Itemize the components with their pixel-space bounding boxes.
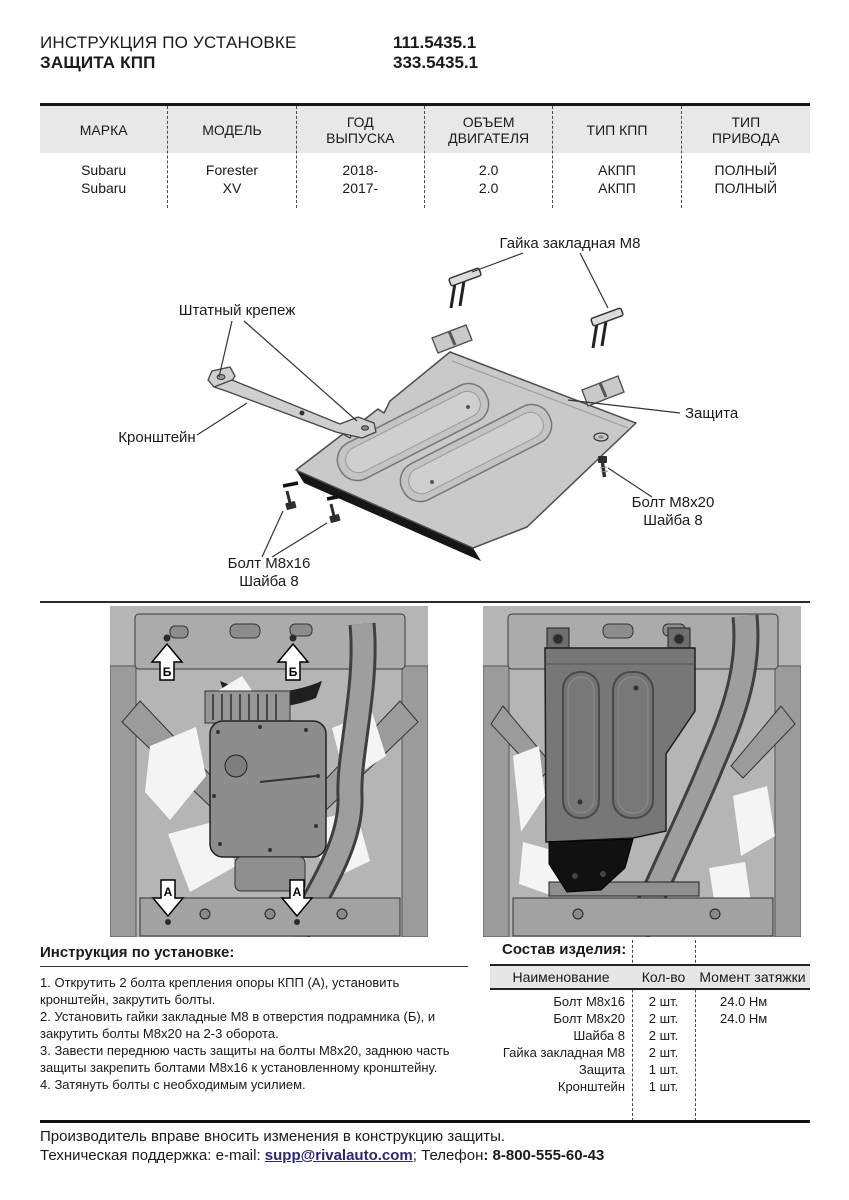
part-qty: 2 шт. — [632, 1027, 695, 1044]
cell: 2.0 — [425, 179, 552, 197]
bolt-m8x16-icon-2 — [327, 496, 342, 523]
footer-disclaimer: Производитель вправе вносить изменения в… — [40, 1128, 505, 1145]
washer-icon — [594, 433, 608, 441]
cell: Subaru — [40, 161, 167, 179]
instruction-step: 2. Установить гайки закладные М8 в отвер… — [40, 1008, 464, 1042]
instruction-sheet: ИНСТРУКЦИЯ ПО УСТАНОВКЕ ЗАЩИТА КПП 111.5… — [0, 0, 849, 1200]
support-label: Техническая поддержка: e-mail: — [40, 1147, 265, 1164]
parts-header-qty: Кол-во — [632, 969, 695, 985]
cell: 2.0 — [425, 161, 552, 179]
col-header: МАРКА — [40, 106, 167, 153]
plate-hole — [430, 480, 434, 484]
footer-divider — [40, 1120, 810, 1123]
label-factory-fastener: Штатный крепеж — [179, 302, 296, 319]
plate-fork-tab-top — [432, 325, 472, 353]
part-torque: 24.0 Нм — [720, 1010, 810, 1027]
bolt-m8x16-icon-1 — [283, 483, 298, 510]
cell: 2017- — [297, 179, 424, 197]
label-bracket: Кронштейн — [118, 429, 195, 446]
cell: ПОЛНЫЙ — [682, 179, 810, 197]
instructions-rule — [40, 966, 468, 967]
part-name: Болт М8х16 — [490, 993, 625, 1010]
parts-header-torque: Момент затяжки — [695, 969, 810, 985]
vehicle-col-gearbox: ТИП КПП АКПП АКПП — [553, 106, 681, 208]
vehicle-col-model: МОДЕЛЬ Forester XV — [168, 106, 296, 208]
instructions-title: Инструкция по установке: — [40, 944, 234, 961]
vehicle-col-year: ГОД ВЫПУСКА 2018- 2017- — [297, 106, 425, 208]
label-bolt-m8x16: Болт М8х16 — [228, 555, 311, 572]
parts-table-header: Наименование Кол-во Момент затяжки — [490, 964, 810, 990]
marker-a-label: А — [164, 885, 173, 899]
exploded-view-diagram: Гайка закладная М8 Штатный крепеж Защита… — [40, 220, 810, 602]
label-washer-8-left: Шайба 8 — [239, 573, 299, 590]
parts-header-name: Наименование — [490, 969, 632, 985]
clip-nut-icon-right — [591, 308, 624, 348]
photo-underbody-mount-points: Б Б А А — [110, 606, 428, 937]
cell: ПОЛНЫЙ — [682, 161, 810, 179]
label-bolt-m8x20: Болт М8х20 — [632, 494, 715, 511]
vehicle-col-drive: ТИП ПРИВОДА ПОЛНЫЙ ПОЛНЫЙ — [682, 106, 810, 208]
product-title: ЗАЩИТА КПП — [40, 53, 156, 73]
instructions-list: 1. Открутить 2 болта крепления опоры КПП… — [40, 974, 464, 1093]
instruction-step: 1. Открутить 2 болта крепления опоры КПП… — [40, 974, 464, 1008]
label-clip-nut: Гайка закладная М8 — [500, 235, 641, 252]
parts-title: Состав изделия: — [502, 941, 626, 958]
clip-nut-icon-left — [449, 268, 482, 308]
part-name: Защита — [490, 1061, 625, 1078]
part-number-1: 111.5435.1 — [393, 33, 476, 53]
cell: 2018- — [297, 161, 424, 179]
doc-type-title: ИНСТРУКЦИЯ ПО УСТАНОВКЕ — [40, 33, 297, 53]
instruction-step: 3. Завести переднюю часть защиты на болт… — [40, 1042, 464, 1076]
label-washer-8-right: Шайба 8 — [643, 512, 703, 529]
cell: Forester — [168, 161, 295, 179]
plate-fork-tab-right — [582, 376, 624, 406]
part-name: Болт М8х20 — [490, 1010, 625, 1027]
part-qty: 2 шт. — [632, 1044, 695, 1061]
phone-label: Телефон — [421, 1147, 483, 1164]
part-qty: 2 шт. — [632, 993, 695, 1010]
section-divider — [40, 601, 810, 603]
part-qty: 1 шт. — [632, 1078, 695, 1095]
label-plate: Защита — [685, 405, 739, 422]
cell: АКПП — [553, 179, 680, 197]
bolt-m8x20-icon — [598, 456, 608, 477]
col-header: ОБЪЕМ ДВИГАТЕЛЯ — [425, 106, 552, 153]
vehicle-table: МАРКА Subaru Subaru МОДЕЛЬ Forester XV Г… — [40, 103, 810, 208]
cell: XV — [168, 179, 295, 197]
marker-a-label: А — [293, 885, 302, 899]
marker-b-label: Б — [289, 665, 298, 679]
marker-b-label: Б — [163, 665, 172, 679]
vehicle-col-engine: ОБЪЕМ ДВИГАТЕЛЯ 2.0 2.0 — [425, 106, 553, 208]
support-email-link[interactable]: supp@rivalauto.com — [265, 1147, 413, 1164]
part-qty: 2 шт. — [632, 1010, 695, 1027]
col-header: ГОД ВЫПУСКА — [297, 106, 424, 153]
photo-underbody-installed — [483, 606, 801, 937]
part-torque: 24.0 Нм — [720, 993, 810, 1010]
support-phone: : 8-800-555-60-43 — [483, 1147, 604, 1164]
part-name: Шайба 8 — [490, 1027, 625, 1044]
part-qty: 1 шт. — [632, 1061, 695, 1078]
separator: ; — [413, 1147, 421, 1164]
part-number-2: 333.5435.1 — [393, 53, 478, 73]
vehicle-col-brand: МАРКА Subaru Subaru — [40, 106, 168, 208]
bracket-drawing — [208, 367, 376, 438]
col-header: МОДЕЛЬ — [168, 106, 295, 153]
cell: Subaru — [40, 179, 167, 197]
instruction-step: 4. Затянуть болты с необходимым усилием. — [40, 1076, 464, 1093]
cell: АКПП — [553, 161, 680, 179]
col-header: ТИП КПП — [553, 106, 680, 153]
part-name: Кронштейн — [490, 1078, 625, 1095]
plate-hole — [466, 405, 470, 409]
part-name: Гайка закладная М8 — [490, 1044, 625, 1061]
col-header: ТИП ПРИВОДА — [682, 106, 810, 153]
footer-support-line: Техническая поддержка: e-mail: supp@riva… — [40, 1147, 604, 1164]
